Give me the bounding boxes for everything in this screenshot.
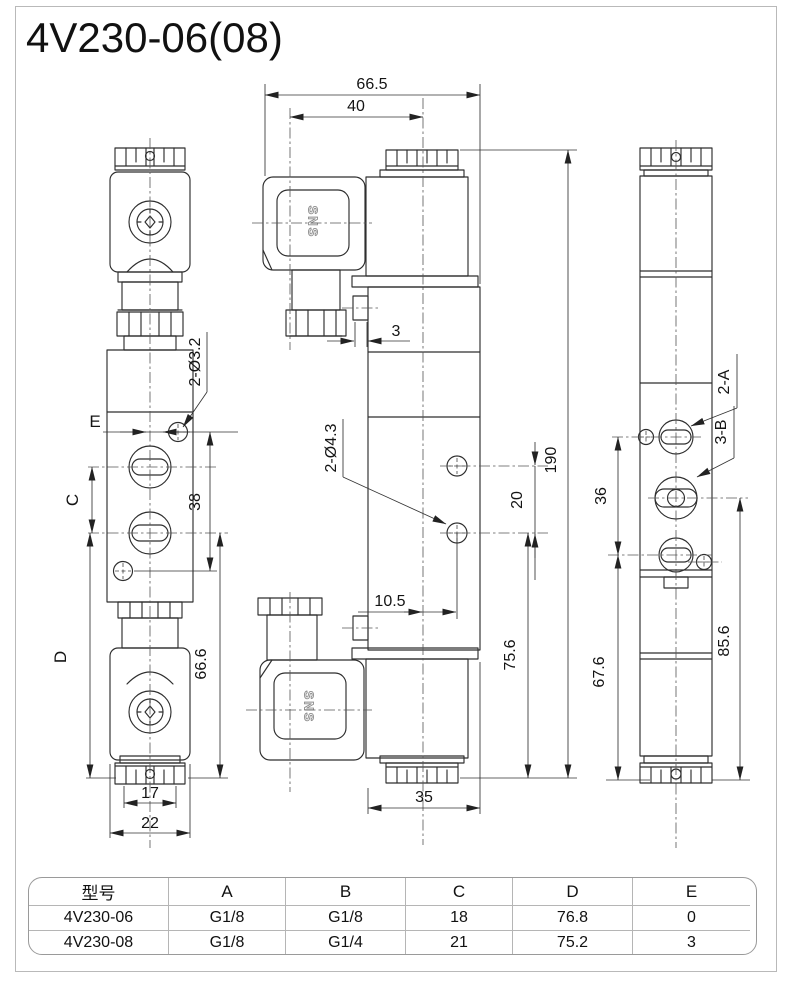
dim-40-label: 40 — [347, 98, 365, 115]
dim-c: C — [63, 467, 92, 533]
dim-10-5-label: 10.5 — [374, 593, 405, 610]
dim-10-5: 10.5 — [358, 533, 457, 619]
middle-view-lower-solenoid — [352, 648, 478, 783]
table-header-c: C — [405, 878, 512, 905]
dim-36: 36 — [593, 437, 618, 555]
dim-hole-callout-left: 2-Ø3.2 — [183, 332, 207, 427]
hole-callout-label: 2-Ø4.3 — [323, 423, 340, 472]
dim-22-label: 22 — [141, 815, 159, 832]
dim-port-a-callout: 2-A — [691, 354, 737, 426]
port-centerlines — [88, 467, 228, 533]
hole-callout-label: 2-Ø3.2 — [187, 337, 204, 386]
dim-3-label: 3 — [392, 323, 401, 340]
dim-75-6-label: 75.6 — [502, 639, 519, 670]
dim-66-6: 66.6 — [188, 533, 228, 778]
dim-66-6-label: 66.6 — [193, 648, 210, 679]
dim-17-label: 17 — [141, 785, 159, 802]
port-a-label: 2-A — [716, 369, 733, 394]
dim-hole-callout-middle: 2-Ø4.3 — [323, 419, 446, 524]
dim-40: 40 — [290, 98, 423, 117]
table-cell: G1/4 — [285, 930, 405, 954]
brand-text-upper: SNS — [306, 206, 321, 239]
brand-text-lower: SNS — [302, 691, 317, 724]
table-cell: 76.8 — [512, 905, 632, 930]
table-header-d: D — [512, 878, 632, 905]
dim-36-label: 36 — [593, 487, 610, 505]
dim-35-label: 35 — [415, 789, 433, 806]
table-cell: G1/8 — [285, 905, 405, 930]
table-cell: 3 — [632, 930, 750, 954]
drawing-page: 4V230-06(08) — [0, 0, 790, 991]
middle-view-lower-connector: SNS — [258, 598, 364, 760]
table-cell: 4V230-08 — [29, 930, 168, 954]
table-cell: 75.2 — [512, 930, 632, 954]
right-view: 2-A 3-B 36 67.6 85.6 — [591, 140, 750, 848]
table-cell: G1/8 — [168, 930, 285, 954]
dim-85-6: 85.6 — [712, 498, 750, 780]
dim-35: 35 — [368, 662, 480, 814]
centerline-horizontals — [246, 223, 548, 710]
dim-38-label: 38 — [187, 493, 204, 511]
dim-38: 38 — [134, 432, 217, 571]
dim-190: 190 — [460, 150, 577, 778]
table-header-a: A — [168, 878, 285, 905]
spec-table: 型号 A B C D E 4V230-06 G1/8 G1/8 18 76.8 … — [28, 877, 757, 955]
dim-75-6: 75.6 — [502, 533, 528, 778]
table-cell: 4V230-06 — [29, 905, 168, 930]
dim-e: E — [89, 412, 238, 432]
dim-e-label: E — [89, 412, 100, 431]
dim-d: D — [51, 533, 116, 778]
middle-view: SNS — [246, 76, 577, 845]
table-header-model: 型号 — [29, 878, 168, 905]
dim-67-6: 67.6 — [591, 555, 650, 780]
table-cell: 21 — [405, 930, 512, 954]
middle-view-body — [353, 287, 480, 650]
table-cell: G1/8 — [168, 905, 285, 930]
middle-view-upper-connector: SNS — [263, 177, 365, 336]
table-cell: 18 — [405, 905, 512, 930]
dim-20: 20 — [509, 442, 535, 580]
right-view-ports — [639, 420, 712, 572]
port-centerlines — [608, 437, 748, 562]
dim-66-5-label: 66.5 — [356, 76, 387, 93]
dim-d-label: D — [51, 651, 70, 663]
middle-view-upper-solenoid — [352, 150, 478, 287]
left-view: 2-Ø3.2 E C D 38 — [51, 138, 238, 848]
valve-technical-drawing: 2-Ø3.2 E C D 38 — [0, 0, 790, 870]
table-header-b: B — [285, 878, 405, 905]
dim-20-label: 20 — [509, 491, 526, 509]
port-b-label: 3-B — [713, 420, 730, 445]
dim-190-label: 190 — [543, 447, 560, 474]
table-header-e: E — [632, 878, 750, 905]
dim-67-6-label: 67.6 — [591, 656, 608, 687]
dim-66-5: 66.5 — [265, 76, 480, 284]
dim-85-6-label: 85.6 — [716, 625, 733, 656]
table-cell: 0 — [632, 905, 750, 930]
dim-c-label: C — [63, 494, 82, 506]
